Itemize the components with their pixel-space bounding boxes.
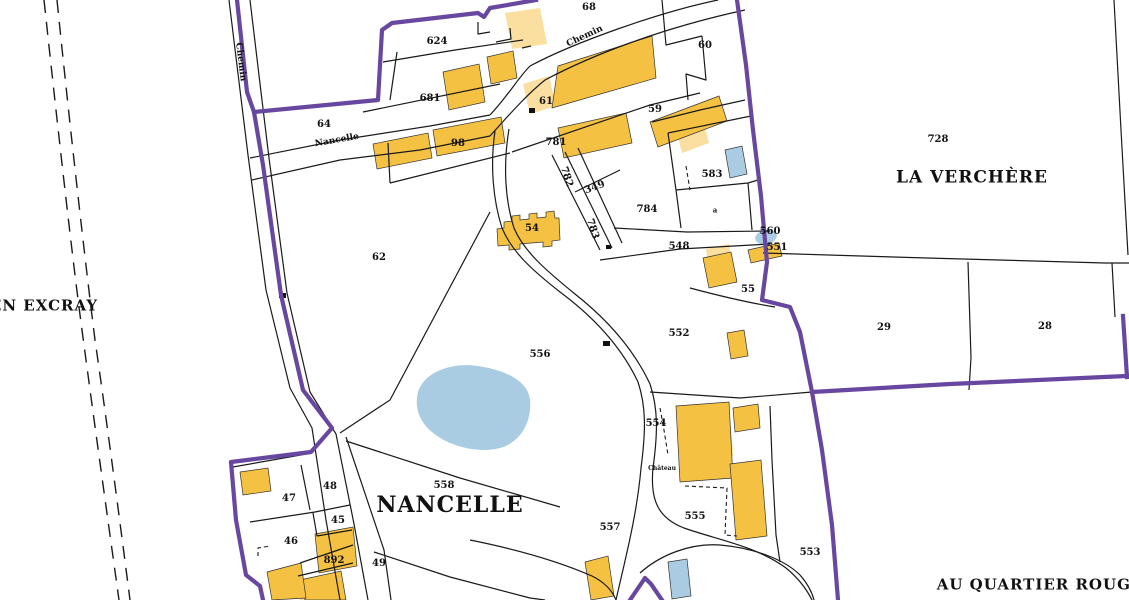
parcel-label-64: 64: [317, 120, 331, 130]
parcel-label-61: 61: [539, 97, 553, 107]
parcel-label-54: 54: [525, 224, 539, 234]
parcel-label-47: 47: [282, 494, 296, 504]
parcel-label-a: a: [713, 207, 718, 214]
parcel-label-548: 548: [669, 242, 690, 252]
parcel-label-624: 624: [427, 37, 448, 47]
parcel-label-62: 62: [372, 253, 386, 263]
parcel-label-892: 892: [324, 556, 345, 566]
parcel-label-553: 553: [800, 548, 821, 558]
parcel-label-29: 29: [877, 323, 891, 333]
parcel-label-48: 48: [323, 482, 337, 492]
parcel-lines: [229, 0, 1129, 600]
parcel-label-49: 49: [372, 559, 386, 569]
place-label-au-quartier-rouge: AU QUARTIER ROUGE: [937, 578, 1129, 593]
parcel-label-28: 28: [1038, 322, 1052, 332]
map-canvas: [0, 0, 1129, 600]
parcel-label-556: 556: [530, 350, 551, 360]
parcel-label-551: 551: [767, 243, 788, 253]
parcel-label-784: 784: [637, 205, 658, 215]
commune-boundary: [231, 0, 1127, 600]
chateau-label: Château: [648, 466, 676, 472]
parcel-label-781: 781: [546, 138, 567, 148]
parcel-label-557: 557: [600, 523, 621, 533]
parcel-label-555: 555: [685, 512, 706, 522]
parcel-label-55: 55: [741, 285, 755, 295]
parcel-label-728: 728: [928, 135, 949, 145]
parcel-label-554: 554: [646, 419, 667, 429]
cadastral-map: 68 624 60 681 64 61 59 781 98 583 728 78…: [0, 0, 1129, 600]
parcel-label-45: 45: [331, 516, 345, 526]
parcel-label-46: 46: [284, 537, 298, 547]
parcel-label-681: 681: [420, 94, 441, 104]
parcel-label-558: 558: [434, 481, 455, 491]
parcel-label-68: 68: [582, 3, 596, 13]
parcel-label-59: 59: [648, 105, 662, 115]
parcel-label-552: 552: [669, 329, 690, 339]
parcel-label-60: 60: [698, 41, 712, 51]
parcel-label-98: 98: [451, 139, 465, 149]
place-label-nancelle: NANCELLE: [376, 494, 523, 516]
parcel-label-583: 583: [702, 170, 723, 180]
place-label-la-verchere: LA VERCHÈRE: [896, 170, 1048, 187]
place-label-en-excray: EN EXCRAY: [0, 299, 98, 314]
parcel-label-560: 560: [760, 227, 781, 237]
